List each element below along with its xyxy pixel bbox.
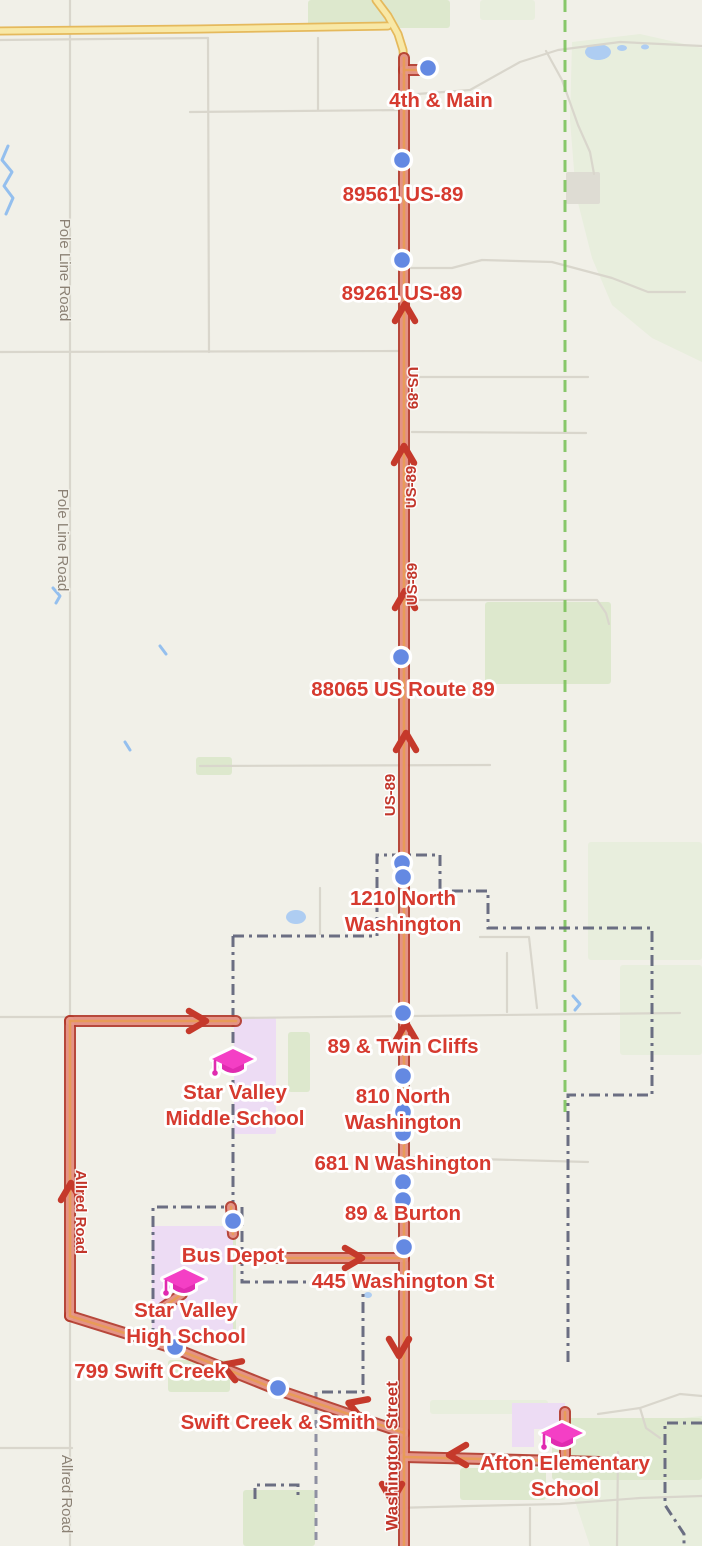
building-area — [566, 172, 600, 204]
green-area — [480, 0, 535, 20]
stop-label-line: 810 North — [356, 1085, 451, 1108]
stop-marker-89-twin-cliffs[interactable] — [394, 1004, 413, 1023]
stop-label-line: 89 & Twin Cliffs — [327, 1035, 478, 1058]
road-line — [200, 765, 490, 766]
graduation-cap-icon — [212, 1070, 218, 1076]
pond — [286, 910, 306, 924]
green-area — [620, 965, 702, 1055]
stop-marker-89-burton[interactable] — [394, 1173, 413, 1192]
stop-label-line: 681 N Washington — [315, 1152, 492, 1175]
stop-label-681-n-washington: 681 N Washington — [315, 1152, 492, 1175]
route-map[interactable]: Pole Line RoadPole Line RoadAllred RoadU… — [0, 0, 702, 1546]
road-line — [412, 432, 586, 433]
school-label-line: Star Valley — [134, 1299, 238, 1322]
school-label-line: Middle School — [166, 1107, 305, 1130]
road-name-label: Pole Line Road — [54, 489, 71, 592]
stop-label-line: 89 & Burton — [345, 1202, 461, 1225]
stop-label-bus-depot: Bus Depot — [182, 1244, 285, 1267]
stop-marker-89561-us-89[interactable] — [393, 151, 412, 170]
school-label-line: Afton Elementary — [480, 1452, 650, 1475]
stop-marker-445-washington-st[interactable] — [395, 1238, 414, 1257]
stop-marker-swift-creek-smith[interactable] — [269, 1379, 288, 1398]
road-line — [0, 351, 398, 352]
stop-marker-bus-depot[interactable] — [224, 1212, 243, 1231]
stop-label-4th-main: 4th & Main — [389, 89, 493, 112]
stop-label-line: Washington — [345, 1111, 462, 1134]
stop-label-line: Swift Creek & Smith — [181, 1411, 376, 1434]
route-name-label: Washington Street — [382, 1381, 401, 1531]
road-line — [208, 38, 209, 352]
road-name-label: Allred Road — [58, 1455, 75, 1533]
graduation-cap-icon — [163, 1290, 169, 1296]
pond — [641, 45, 649, 50]
stop-label-line: Washington — [345, 913, 462, 936]
green-area — [588, 842, 702, 960]
stop-marker-88065-us-route-89[interactable] — [392, 648, 411, 667]
stop-label-line: Bus Depot — [182, 1244, 285, 1267]
route-name-label: US-89 — [404, 367, 421, 410]
stop-label-line: 89561 US-89 — [343, 183, 464, 206]
stop-label-89561-us-89: 89561 US-89 — [343, 183, 464, 206]
stop-label-line: 4th & Main — [389, 89, 493, 112]
stop-label-line: 1210 North — [350, 887, 456, 910]
stop-marker-89261-us-89[interactable] — [393, 251, 412, 270]
route-map-canvas[interactable]: Pole Line RoadPole Line RoadAllred RoadU… — [0, 0, 702, 1546]
stop-label-445-washington-st: 445 Washington St — [312, 1270, 495, 1293]
stop-label-89-twin-cliffs: 89 & Twin Cliffs — [327, 1035, 478, 1058]
school-label-line: Star Valley — [183, 1081, 287, 1104]
road-name-label: Pole Line Road — [56, 219, 73, 322]
graduation-cap-icon — [541, 1444, 547, 1450]
route-name-label: US-89 — [382, 774, 399, 817]
green-area — [485, 602, 611, 684]
stop-label-88065-us-route-89: 88065 US Route 89 — [311, 678, 494, 701]
stop-label-89261-us-89: 89261 US-89 — [342, 282, 463, 305]
stop-label-799-swift-creek: 799 Swift Creek — [74, 1360, 226, 1383]
stop-label-line: 89261 US-89 — [342, 282, 463, 305]
stop-label-swift-creek-smith: Swift Creek & Smith — [181, 1411, 376, 1434]
school-label-line: School — [531, 1478, 599, 1501]
stop-marker-1210-north-washington[interactable] — [394, 868, 413, 887]
pond — [617, 45, 627, 51]
stop-label-line: 445 Washington St — [312, 1270, 495, 1293]
school-label-line: High School — [126, 1325, 246, 1348]
route-name-label: US-89 — [404, 563, 421, 606]
stop-label-89-burton: 89 & Burton — [345, 1202, 461, 1225]
stop-label-line: 88065 US Route 89 — [311, 678, 494, 701]
green-area — [288, 1032, 310, 1092]
route-name-label: US-89 — [403, 466, 420, 509]
stop-marker-810-north-washington[interactable] — [394, 1067, 413, 1086]
stop-label-line: 799 Swift Creek — [74, 1360, 226, 1383]
stop-marker-4th-main[interactable] — [419, 59, 438, 78]
route-name-label: Allred Road — [72, 1170, 89, 1254]
